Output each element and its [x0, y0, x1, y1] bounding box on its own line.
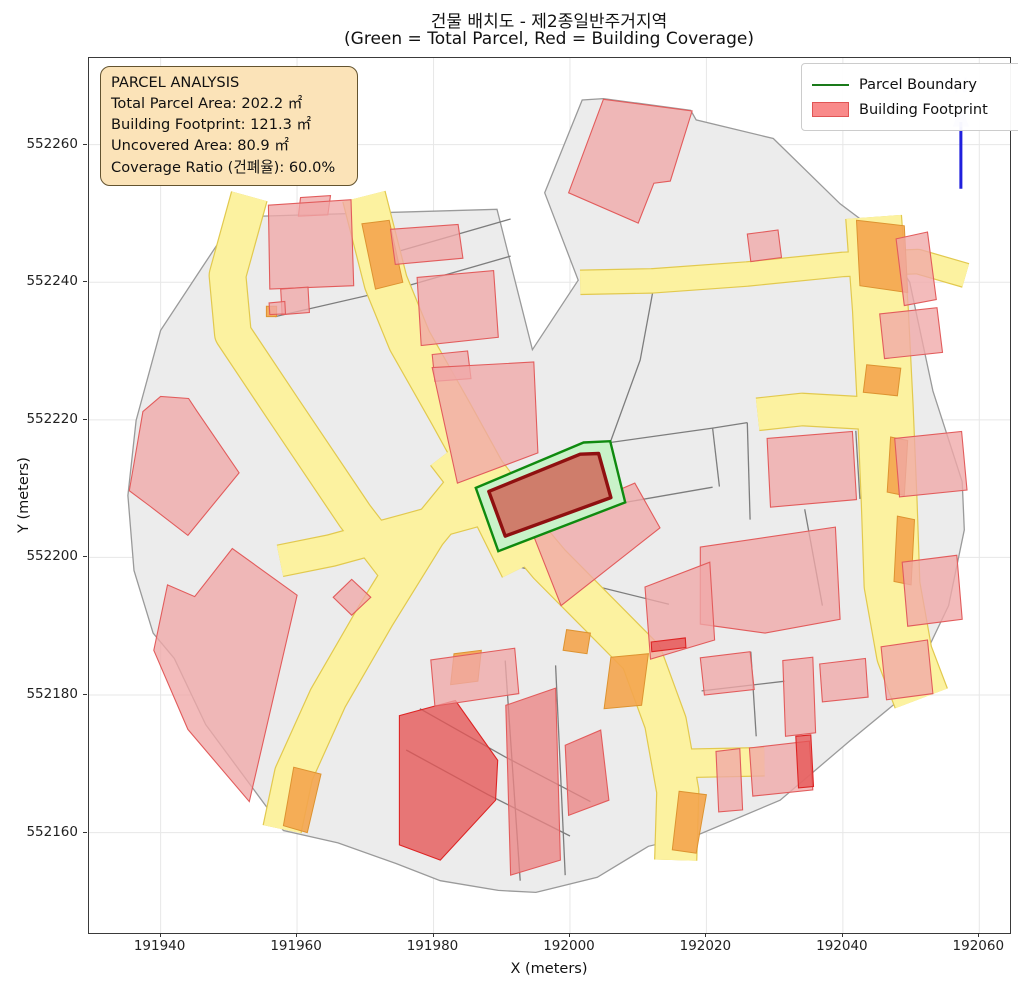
building-footprint — [895, 432, 967, 497]
x-tickmark — [705, 933, 706, 937]
y-tick-label: 552240 — [0, 273, 78, 289]
building-footprint — [881, 640, 933, 700]
y-tick-label: 552220 — [0, 411, 78, 427]
road — [662, 762, 764, 764]
building-footprint — [716, 749, 743, 812]
info-line: Coverage Ratio (건폐율): 60.0% — [111, 157, 347, 178]
parcel-analysis-box: PARCEL ANALYSIS Total Parcel Area: 202.2… — [100, 66, 358, 186]
overlap-patch — [604, 654, 648, 709]
info-line: Uncovered Area: 80.9 ㎡ — [111, 135, 347, 156]
building-footprint — [700, 652, 754, 695]
building-footprint — [880, 308, 943, 359]
y-tick-label: 552180 — [0, 686, 78, 702]
legend-item-parcel-boundary: Parcel Boundary — [812, 72, 1014, 97]
x-tickmark — [160, 933, 161, 937]
parcel-boundary-line-swatch — [812, 84, 849, 86]
x-tick-label: 192020 — [665, 938, 745, 954]
x-tick-label: 191980 — [393, 938, 473, 954]
plot-area: N — [88, 57, 1011, 934]
building-footprint — [565, 730, 609, 815]
info-line: Total Parcel Area: 202.2 ㎡ — [111, 93, 347, 114]
building-footprint — [391, 225, 463, 265]
building-footprint — [767, 432, 856, 508]
y-tickmark — [83, 556, 87, 557]
page-subtitle: (Green = Total Parcel, Red = Building Co… — [88, 29, 1010, 49]
building-footprint — [747, 230, 781, 262]
x-tickmark — [433, 933, 434, 937]
building-footprint — [417, 271, 498, 346]
y-tickmark — [83, 281, 87, 282]
info-line: Building Footprint: 121.3 ㎡ — [111, 114, 347, 135]
x-tickmark — [978, 933, 979, 937]
building-footprint — [820, 659, 868, 702]
overlap-patch — [863, 365, 901, 396]
building-footprint — [783, 657, 816, 736]
x-axis-label: X (meters) — [88, 961, 1010, 977]
building-footprint — [902, 555, 962, 626]
overlap-patch — [563, 630, 590, 654]
legend-item-building-footprint: Building Footprint — [812, 97, 1014, 122]
building-footprint — [268, 200, 353, 289]
y-tickmark — [83, 419, 87, 420]
x-tickmark — [569, 933, 570, 937]
building-footprint — [796, 735, 814, 788]
building-footprint — [269, 302, 285, 315]
road — [758, 410, 864, 415]
building-footprint — [506, 688, 561, 875]
x-tickmark — [842, 933, 843, 937]
x-tick-label: 192060 — [938, 938, 1018, 954]
x-tick-label: 191940 — [120, 938, 200, 954]
x-tick-label: 192000 — [529, 938, 609, 954]
y-tickmark — [83, 694, 87, 695]
x-tick-label: 192040 — [802, 938, 882, 954]
building-footprint-patch-swatch — [812, 102, 849, 117]
y-tickmark — [83, 144, 87, 145]
legend-label: Parcel Boundary — [859, 77, 977, 93]
x-tickmark — [296, 933, 297, 937]
info-line: PARCEL ANALYSIS — [111, 72, 347, 93]
map-canvas: N — [89, 58, 1010, 933]
y-tick-label: 552200 — [0, 548, 78, 564]
y-tick-label: 552260 — [0, 136, 78, 152]
y-axis-label: Y (meters) — [16, 435, 32, 555]
figure: 건물 배치도 - 제2종일반주거지역 (Green = Total Parcel… — [0, 0, 1018, 990]
legend-label: Building Footprint — [859, 102, 988, 118]
x-tick-label: 191960 — [256, 938, 336, 954]
legend: Parcel Boundary Building Footprint — [801, 63, 1018, 131]
y-tick-label: 552160 — [0, 824, 78, 840]
y-tickmark — [83, 832, 87, 833]
